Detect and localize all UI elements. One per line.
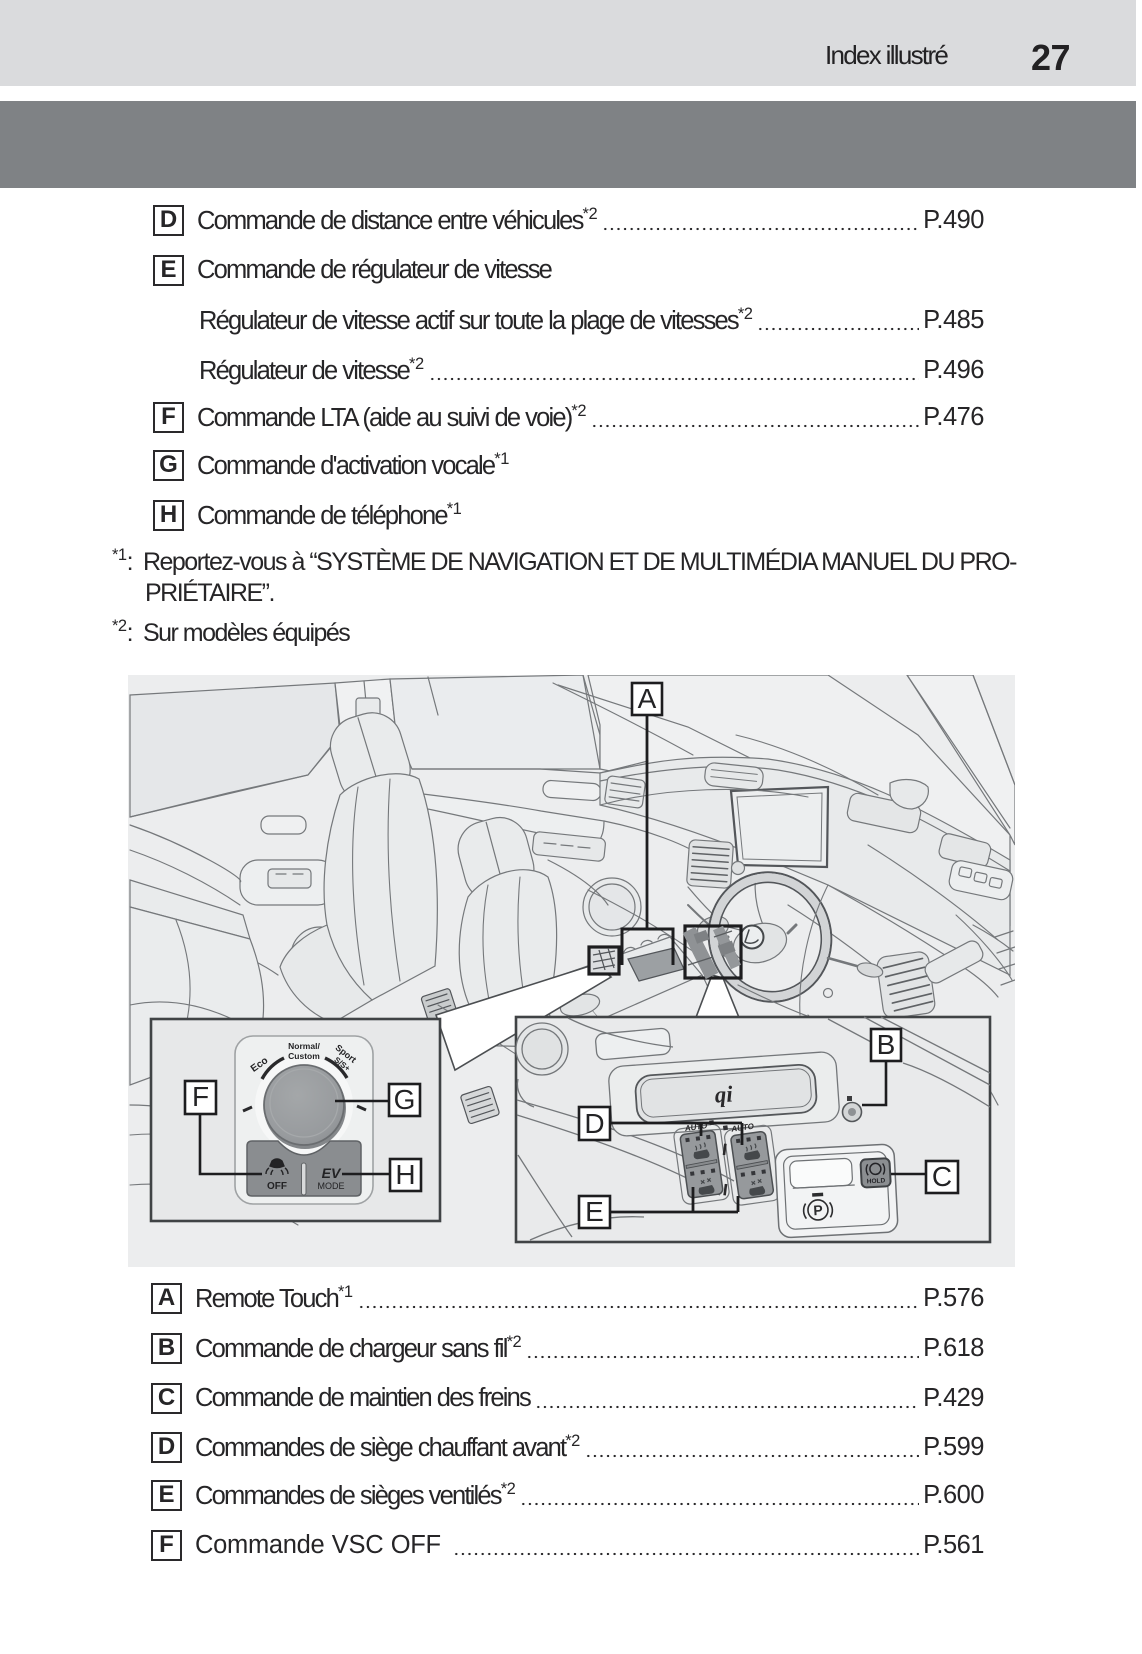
svg-text:D: D xyxy=(584,1108,604,1139)
svg-text:qi: qi xyxy=(714,1081,734,1107)
svg-text:OFF: OFF xyxy=(267,1181,287,1192)
svg-text:B: B xyxy=(877,1029,896,1060)
svg-text:C: C xyxy=(932,1161,952,1192)
svg-text:HOLD: HOLD xyxy=(867,1177,886,1185)
svg-text:A: A xyxy=(638,683,657,714)
svg-text:F: F xyxy=(192,1081,209,1112)
svg-text:G: G xyxy=(394,1084,416,1115)
svg-text:H: H xyxy=(395,1159,415,1190)
svg-text:EV: EV xyxy=(322,1165,342,1181)
svg-text:Custom: Custom xyxy=(288,1051,320,1061)
svg-text:Normal/: Normal/ xyxy=(288,1041,320,1051)
svg-text:E: E xyxy=(585,1196,604,1227)
svg-text:MODE: MODE xyxy=(318,1181,345,1191)
svg-text:P: P xyxy=(813,1202,823,1218)
